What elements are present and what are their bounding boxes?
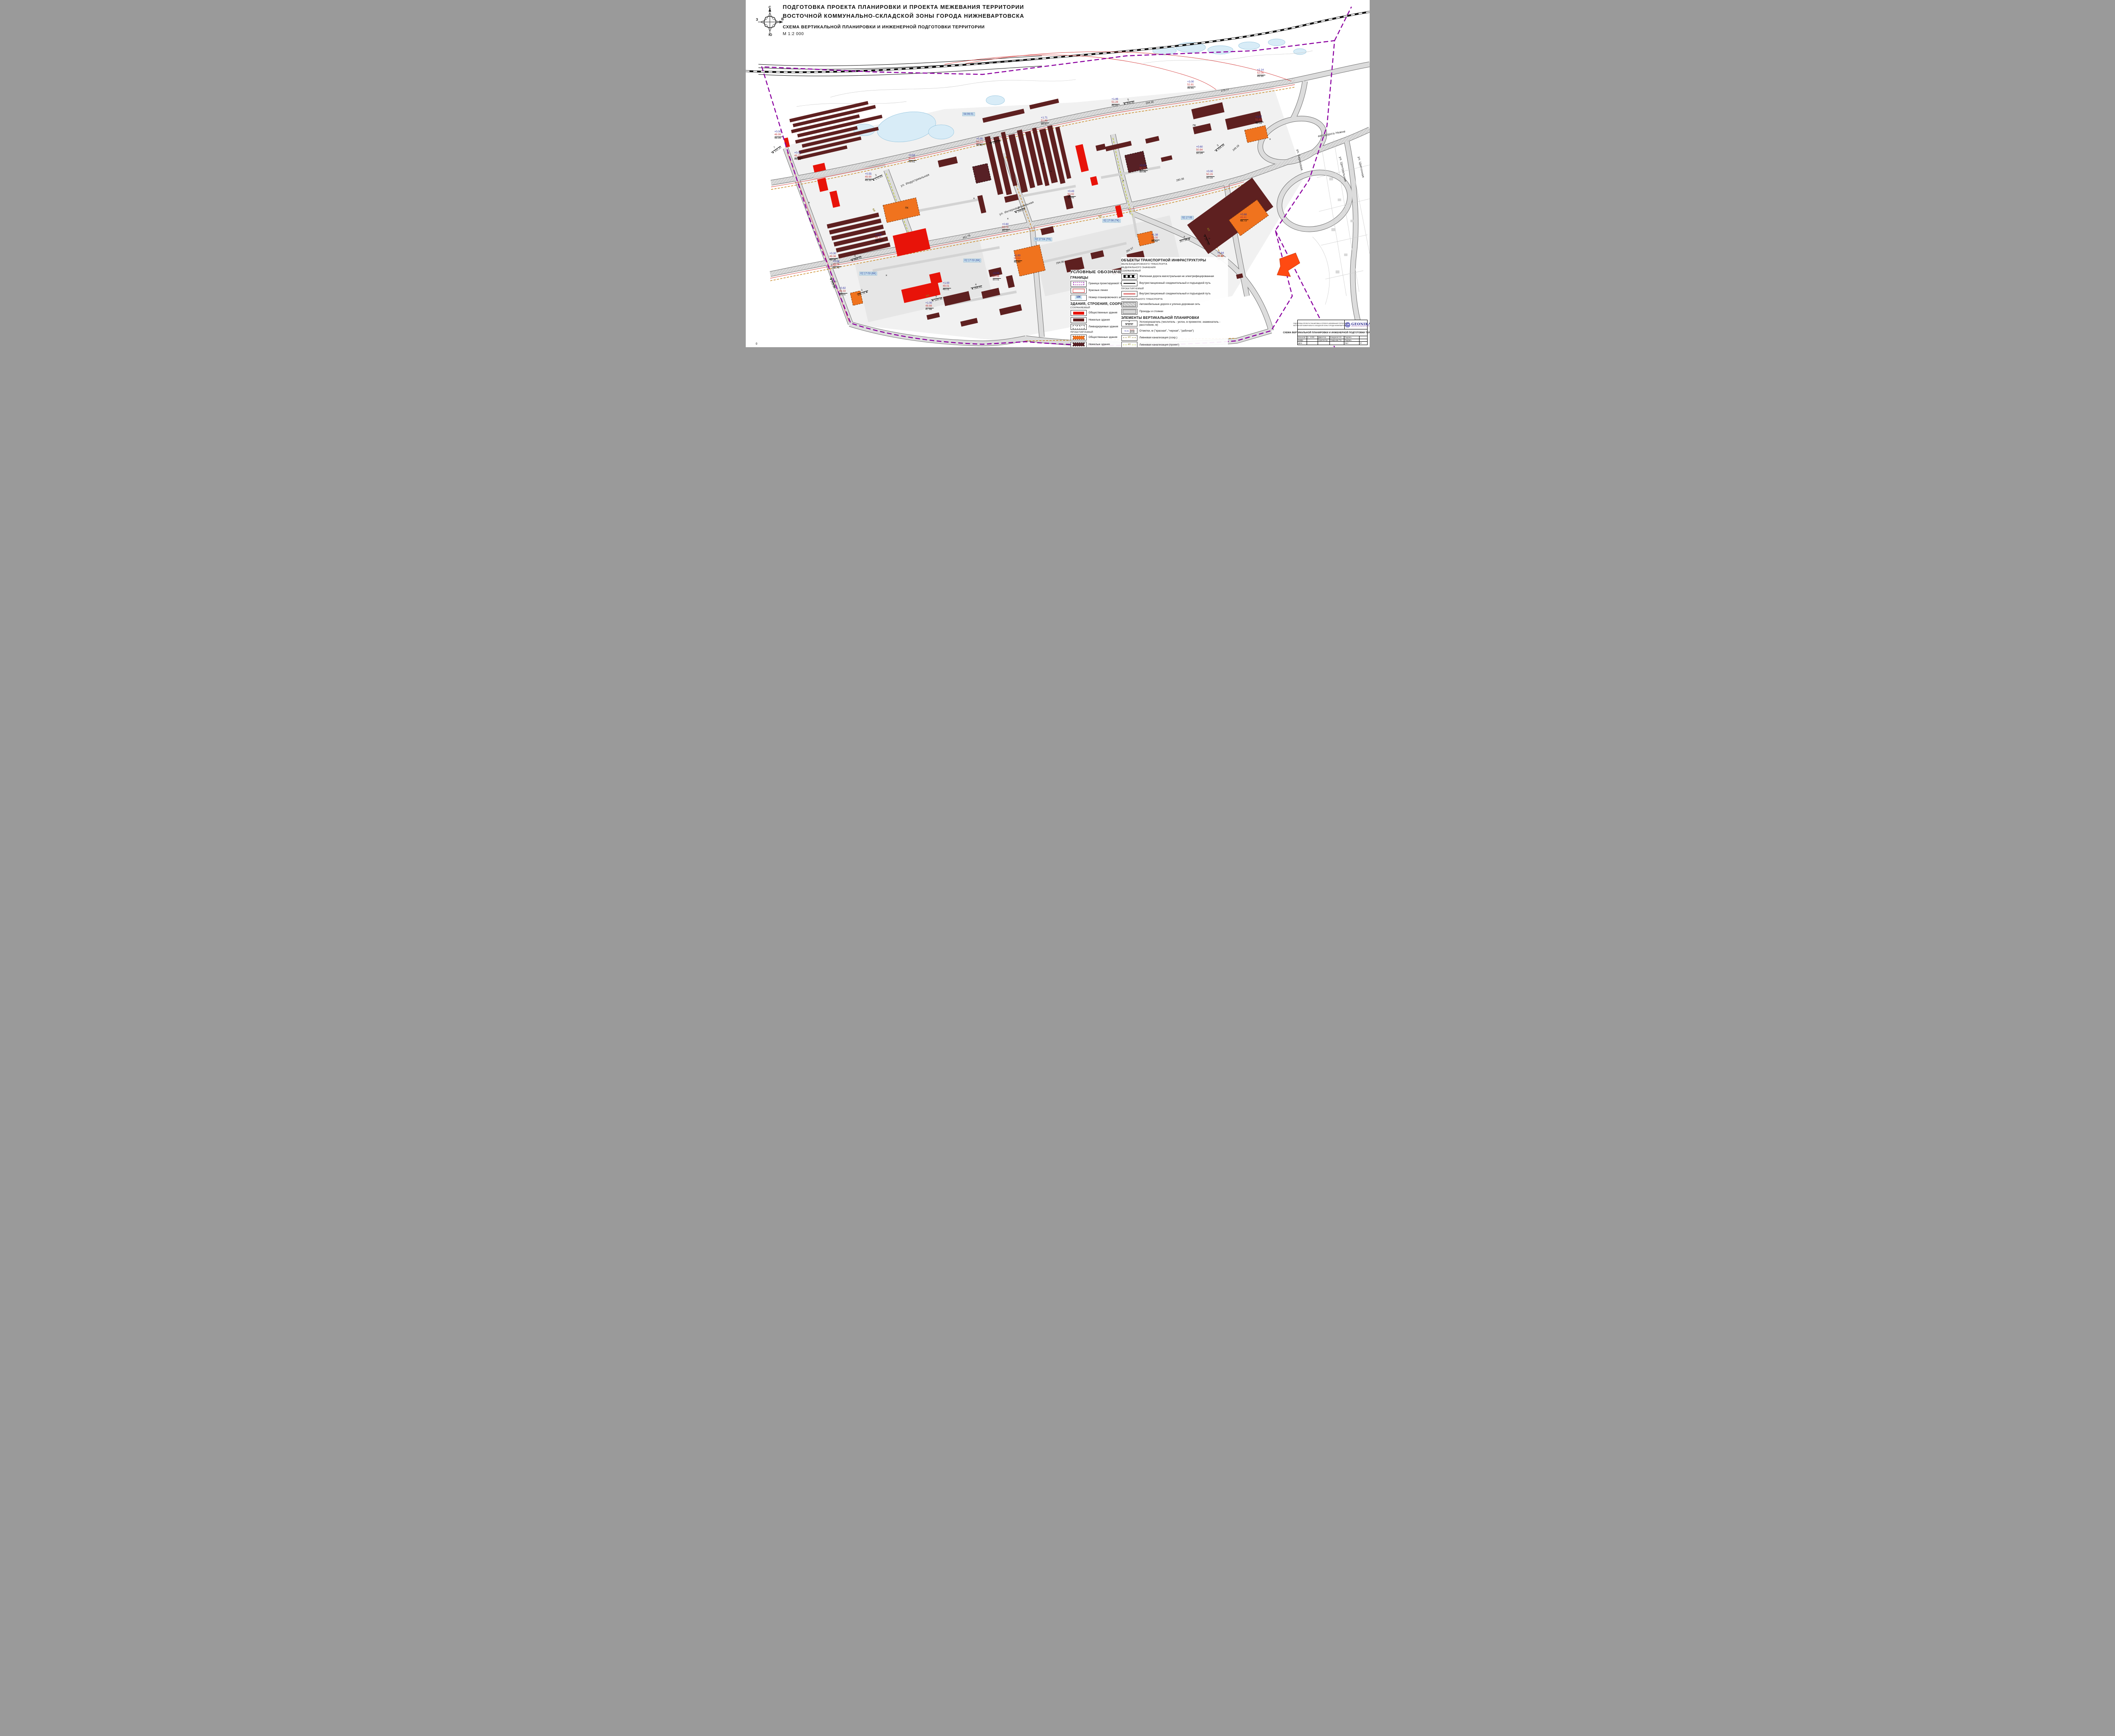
stamp-date-label: Дата — [1298, 342, 1307, 345]
drawing-sheet: ПОДГОТОВКА ПРОЕКТА ПЛАНИРОВКИ И ПРОЕКТА … — [746, 0, 1370, 347]
auto-heading: АВТОМОБИЛЬНОГО ТРАНСПОРТА — [1121, 298, 1228, 301]
stamp-scale-label: Масштаб — [1298, 336, 1307, 339]
title-line-1: ПОДГОТОВКА ПРОЕКТА ПЛАНИРОВКИ И ПРОЕКТА … — [783, 3, 1025, 12]
legend-item-marks: +0.2154.6154.40 Отметки, м ("красная", "… — [1121, 328, 1228, 334]
compass-east-label: В — [781, 17, 784, 21]
compass-north-label: С — [769, 5, 771, 9]
stamp-director-label: Директор — [1318, 336, 1330, 339]
stamp-architect-name: Смирнова Т.Б — [1330, 339, 1344, 342]
legend-item-slope: 4➤ 95.47 Уклоноуказатель (числитель - ук… — [1121, 321, 1228, 327]
title-stamp: ПОДГОТОВКА ПРОЕКТА ПЛАНИРОВКИ И ПРОЕКТА … — [1297, 320, 1368, 345]
geonika-logo: G GEONIKA АГЕНТСТВО ПО РАЗВИТИЮ ТЕРРИТОР… — [1345, 320, 1370, 329]
title-block: ПОДГОТОВКА ПРОЕКТА ПЛАНИРОВКИ И ПРОЕКТА … — [783, 3, 1025, 36]
demolished-swatch: × × — [1071, 324, 1087, 330]
federal-label: ФЕДЕРАЛЬНОГО ЗНАЧЕНИЯ — [1121, 266, 1228, 269]
compass-rose: С В Ю З — [756, 5, 784, 36]
red-lines-swatch — [1071, 288, 1087, 293]
rail-preserved-label: СОХРАНЯЕМЫЙ — [1121, 270, 1228, 272]
public-projected-swatch — [1071, 335, 1087, 340]
svg-text:G: G — [1346, 323, 1349, 327]
stamp-sheet-label: Лист — [1344, 342, 1360, 345]
stamp-sheet-number: 07 — [1360, 342, 1367, 345]
map-scale: М 1:2 000 — [783, 32, 1025, 36]
legend-item-driveways: Проезды и стоянки — [1121, 309, 1228, 315]
compass-south-label: Ю — [769, 33, 772, 36]
slope-swatch: 4➤ 95.47 — [1121, 321, 1137, 326]
rail-main-swatch — [1121, 274, 1137, 280]
geonika-gear-icon: G — [1345, 322, 1351, 328]
legend-transport: ОБЪЕКТЫ ТРАНСПОРТНОЙ ИНФРАСТРУКТУРЫ ЖЕЛЕ… — [1121, 257, 1228, 347]
roads-swatch — [1121, 302, 1137, 307]
driveways-swatch — [1121, 309, 1137, 315]
nonresidential-projected-swatch — [1071, 342, 1087, 348]
legend-item-storm-existing: КЛ Ливневая канализация (сохр.) — [1121, 335, 1228, 341]
stamp-sign-label-1: Подпись — [1344, 336, 1360, 339]
stamp-scale-value: 1 : 2 000 — [1307, 336, 1318, 339]
compass-west-label: З — [756, 18, 758, 22]
stamp-sheet-title: СХЕМА ВЕРТИКАЛЬНОЙ ПЛАНИРОВКИ И ИНЖЕНЕРН… — [1298, 329, 1367, 336]
transport-heading: ОБЪЕКТЫ ТРАНСПОРТНОЙ ИНФРАСТРУКТУРЫ — [1121, 258, 1228, 262]
legend-item-rail-main: Железная дорога магистральная не электри… — [1121, 274, 1228, 280]
rail-station-swatch — [1121, 280, 1137, 286]
stamp-architect-label: Архитектор — [1318, 339, 1330, 342]
vertical-heading: ЭЛЕМЕНТЫ ВЕРТИКАЛЬНОЙ ПЛАНИРОВКИ — [1121, 316, 1228, 320]
legend-item-roads: Автомобильные дороги и улично-дорожная с… — [1121, 302, 1228, 307]
subtitle: СХЕМА ВЕРТИКАЛЬНОЙ ПЛАНИРОВКИ И ИНЖЕНЕРН… — [783, 25, 1025, 30]
planning-number-swatch: 10К — [1071, 295, 1087, 301]
legend-item-storm-projected: КЛ Ливневая канализация (проект) — [1121, 342, 1228, 347]
stamp-sign-label-2: Подпись — [1344, 339, 1360, 342]
map-canvas — [746, 0, 1370, 347]
rail-station-projected-swatch — [1121, 291, 1137, 297]
storm-existing-swatch: КЛ — [1121, 335, 1137, 341]
stamp-director-name: Кожурков О.В — [1330, 336, 1344, 339]
legend-item-rail-station-projected: Внутристанционный соединительный и подъе… — [1121, 291, 1228, 297]
legend-item-rail-station: Внутристанционный соединительный и подъе… — [1121, 280, 1228, 286]
storm-projected-swatch: КЛ — [1121, 342, 1137, 347]
stamp-code-label: Шифр — [1298, 339, 1307, 342]
rail-projected-label: ПРОЕКТИРУЕМЫЙ — [1121, 288, 1228, 290]
title-line-2: ВОСТОЧНОЙ КОММУНАЛЬНО-СКЛАДСКОЙ ЗОНЫ ГОР… — [783, 12, 1025, 21]
stamp-project-name: ПОДГОТОВКА ПРОЕКТА ПЛАНИРОВКИ И ПРОЕКТА … — [1298, 320, 1345, 329]
frame-corner-mark: 0 — [756, 343, 758, 346]
rail-heading: ЖЕЛЕЗНОДОРОЖНОГО ТРАНСПОРТА — [1121, 263, 1228, 266]
stamp-table: Масштаб 1 : 2 000 Директор Кожурков О.В … — [1298, 336, 1367, 345]
boundary-swatch — [1071, 281, 1087, 287]
nonresidential-swatch — [1071, 317, 1087, 323]
public-building-swatch — [1071, 310, 1087, 316]
marks-swatch: +0.2154.6154.40 — [1121, 328, 1137, 334]
